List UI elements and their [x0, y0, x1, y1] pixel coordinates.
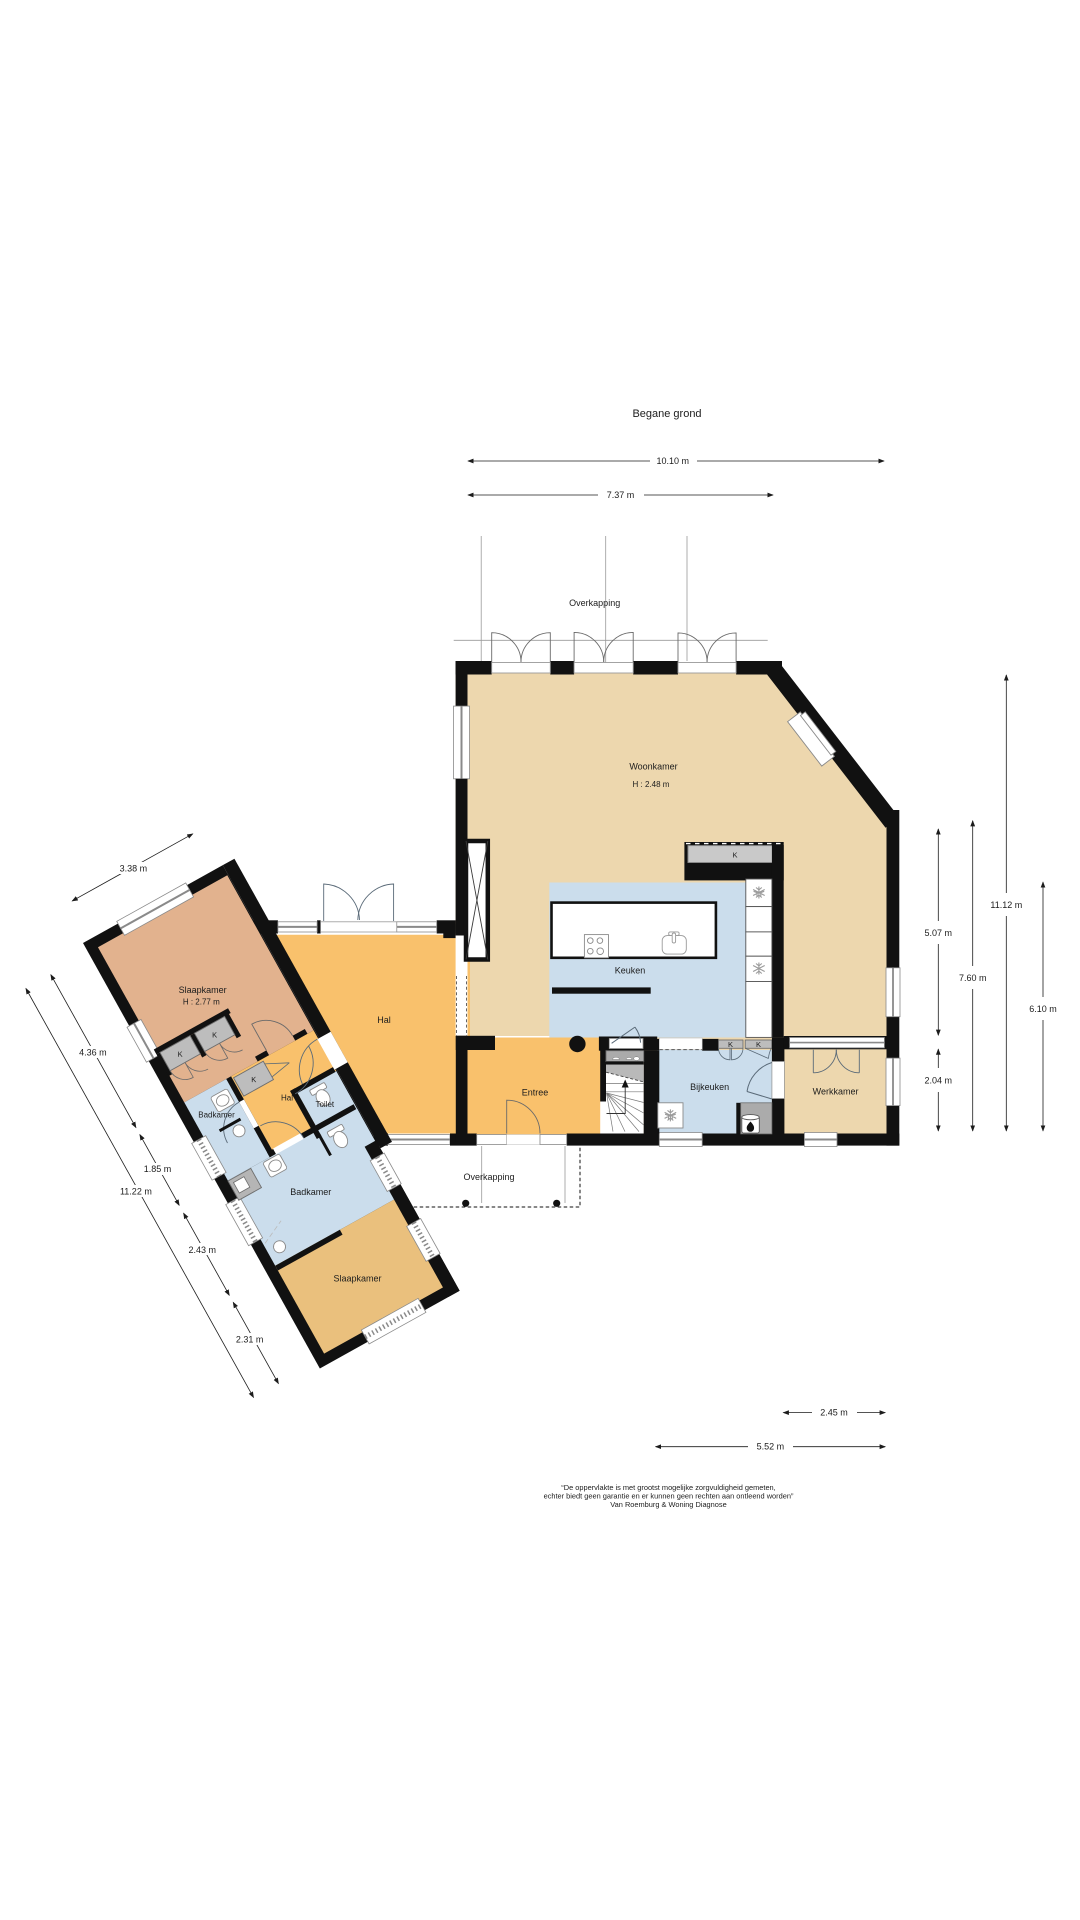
svg-text:Hal: Hal: [377, 1015, 391, 1025]
svg-text:3.38 m: 3.38 m: [120, 864, 148, 874]
svg-text:K: K: [178, 1050, 183, 1059]
svg-text:4.36 m: 4.36 m: [79, 1048, 107, 1058]
svg-text:10.10 m: 10.10 m: [657, 456, 690, 466]
svg-text:Entree: Entree: [522, 1088, 549, 1098]
svg-text:Badkamer: Badkamer: [290, 1187, 331, 1197]
svg-text:11.22 m: 11.22 m: [120, 1187, 152, 1197]
svg-text:H : 2.77 m: H : 2.77 m: [183, 998, 220, 1007]
svg-text:1.85 m: 1.85 m: [144, 1164, 172, 1174]
svg-text:Werkkamer: Werkkamer: [813, 1087, 859, 1097]
svg-text:K: K: [251, 1075, 256, 1084]
svg-text:Hal: Hal: [281, 1093, 293, 1102]
svg-text:Slaapkamer: Slaapkamer: [179, 985, 227, 995]
svg-text:6.10 m: 6.10 m: [1029, 1004, 1057, 1014]
svg-text:H : 2.48 m: H : 2.48 m: [633, 780, 670, 789]
svg-text:7.37 m: 7.37 m: [607, 490, 635, 500]
svg-text:Woonkamer: Woonkamer: [629, 762, 677, 772]
svg-text:Begane grond: Begane grond: [632, 408, 701, 420]
svg-text:2.31 m: 2.31 m: [236, 1335, 264, 1345]
svg-text:K: K: [728, 1040, 733, 1049]
svg-text:K: K: [212, 1031, 217, 1040]
svg-text:Van Roemburg & Woning Diagnose: Van Roemburg & Woning Diagnose: [610, 1500, 726, 1509]
svg-text:Bijkeuken: Bijkeuken: [690, 1082, 729, 1092]
svg-text:Slaapkamer: Slaapkamer: [333, 1274, 381, 1284]
svg-text:2.43 m: 2.43 m: [188, 1245, 216, 1255]
svg-text:K: K: [756, 1040, 761, 1049]
svg-text:2.04 m: 2.04 m: [925, 1076, 953, 1086]
svg-text:Overkapping: Overkapping: [569, 598, 620, 608]
svg-text:5.52 m: 5.52 m: [757, 1442, 785, 1452]
svg-text:Keuken: Keuken: [615, 966, 646, 976]
svg-text:Toilet: Toilet: [315, 1100, 334, 1109]
svg-text:K: K: [732, 851, 737, 860]
svg-text:5.07 m: 5.07 m: [925, 928, 953, 938]
svg-text:7.60 m: 7.60 m: [959, 973, 987, 983]
svg-text:Badkamer: Badkamer: [198, 1110, 235, 1119]
svg-text:2.45 m: 2.45 m: [820, 1408, 848, 1418]
svg-text:Overkapping: Overkapping: [463, 1172, 514, 1182]
svg-text:11.12 m: 11.12 m: [990, 900, 1022, 910]
